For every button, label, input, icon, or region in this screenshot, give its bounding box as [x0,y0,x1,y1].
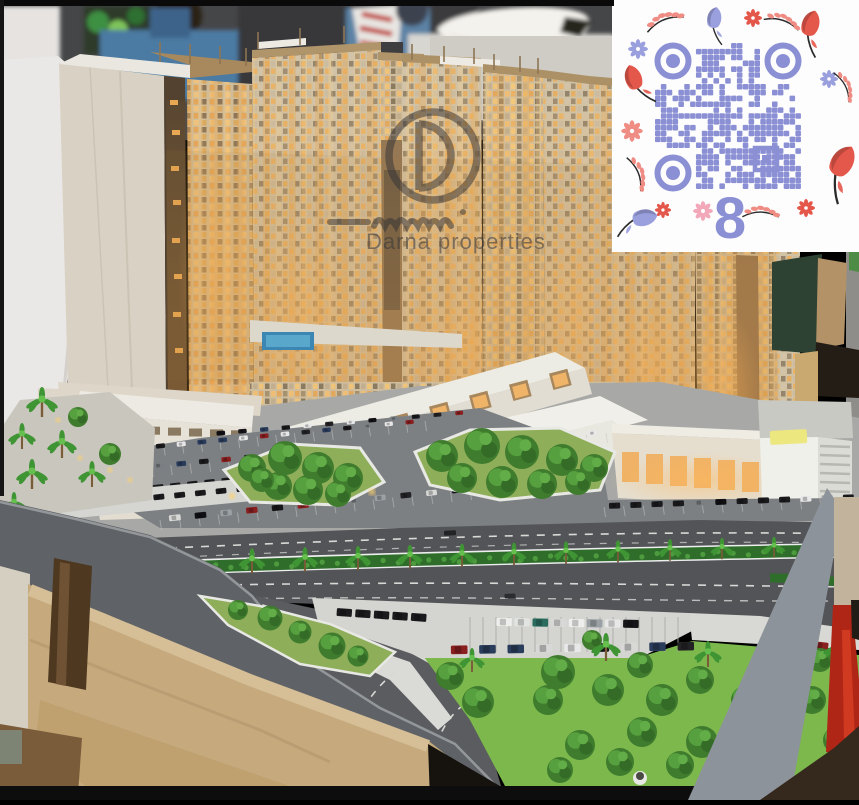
svg-text:Darna properties: Darna properties [366,229,546,254]
svg-text:8: 8 [714,186,746,251]
